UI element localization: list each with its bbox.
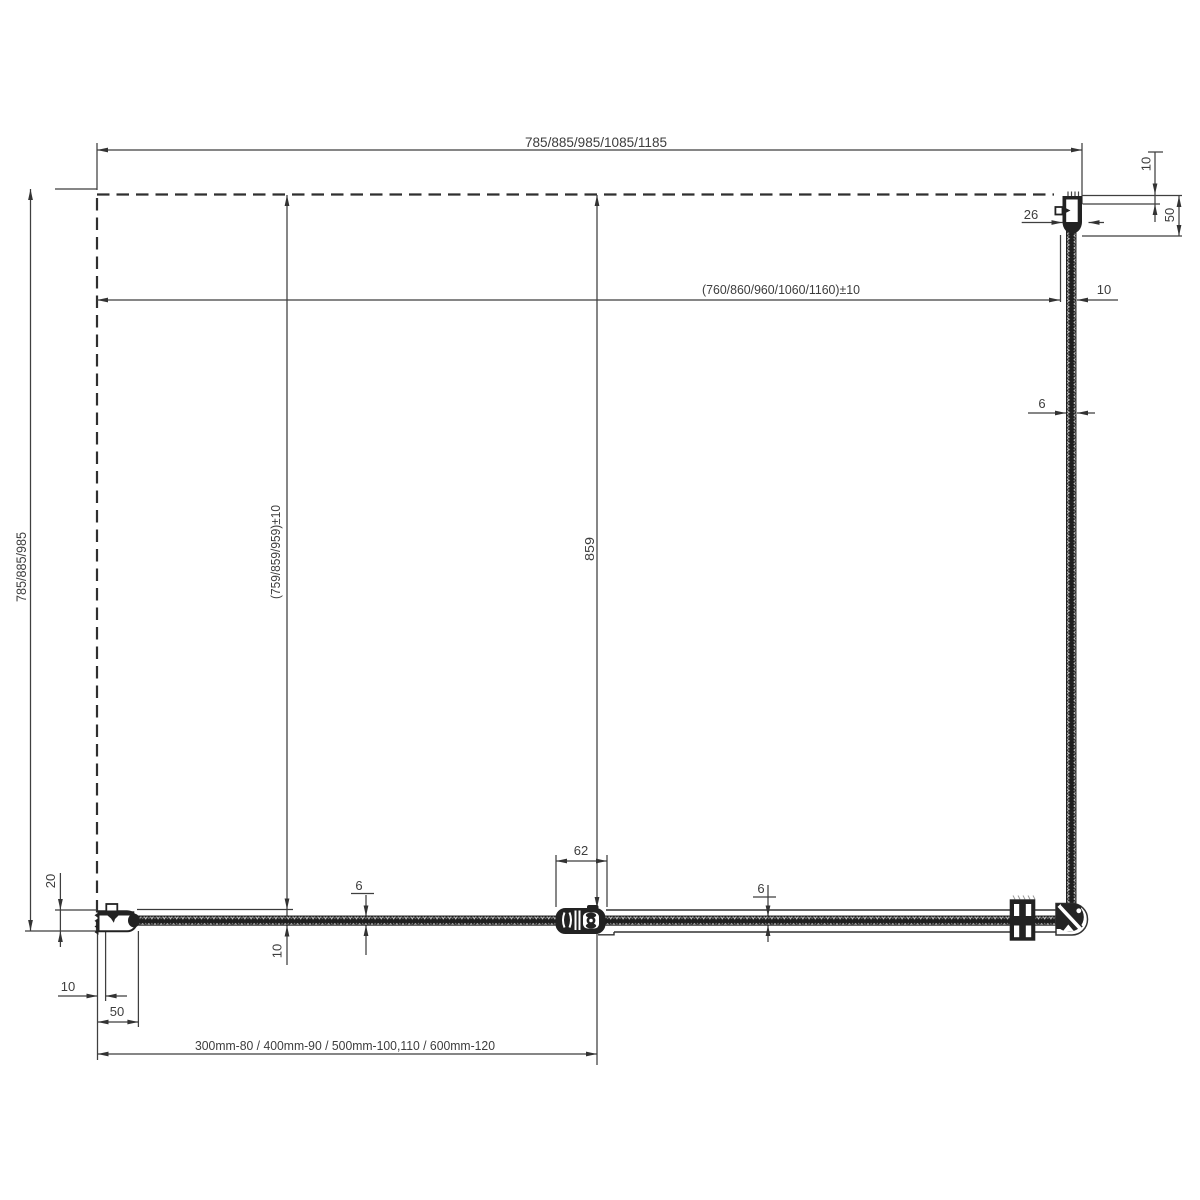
svg-text:6: 6 <box>757 881 764 896</box>
svg-text:(759/859/959)±10: (759/859/959)±10 <box>268 505 283 599</box>
svg-text:6: 6 <box>355 878 362 893</box>
svg-text:50: 50 <box>1162 208 1177 222</box>
svg-text:10: 10 <box>1139 157 1154 171</box>
svg-text:785/885/985/1085/1185: 785/885/985/1085/1185 <box>525 135 667 150</box>
svg-text:(760/860/960/1060/1160)±10: (760/860/960/1060/1160)±10 <box>702 282 860 297</box>
svg-text:50: 50 <box>110 1004 124 1019</box>
svg-text:300mm-80 / 400mm-90 / 500mm-10: 300mm-80 / 400mm-90 / 500mm-100,110 / 60… <box>195 1038 495 1053</box>
svg-text:20: 20 <box>43 874 58 888</box>
svg-text:62: 62 <box>574 843 588 858</box>
svg-text:6: 6 <box>1038 396 1045 411</box>
svg-text:10: 10 <box>270 944 285 958</box>
svg-text:785/885/985: 785/885/985 <box>14 532 29 602</box>
svg-text:10: 10 <box>61 979 75 994</box>
svg-text:26: 26 <box>1024 207 1038 222</box>
svg-text:859: 859 <box>582 537 597 561</box>
svg-text:10: 10 <box>1097 282 1111 297</box>
